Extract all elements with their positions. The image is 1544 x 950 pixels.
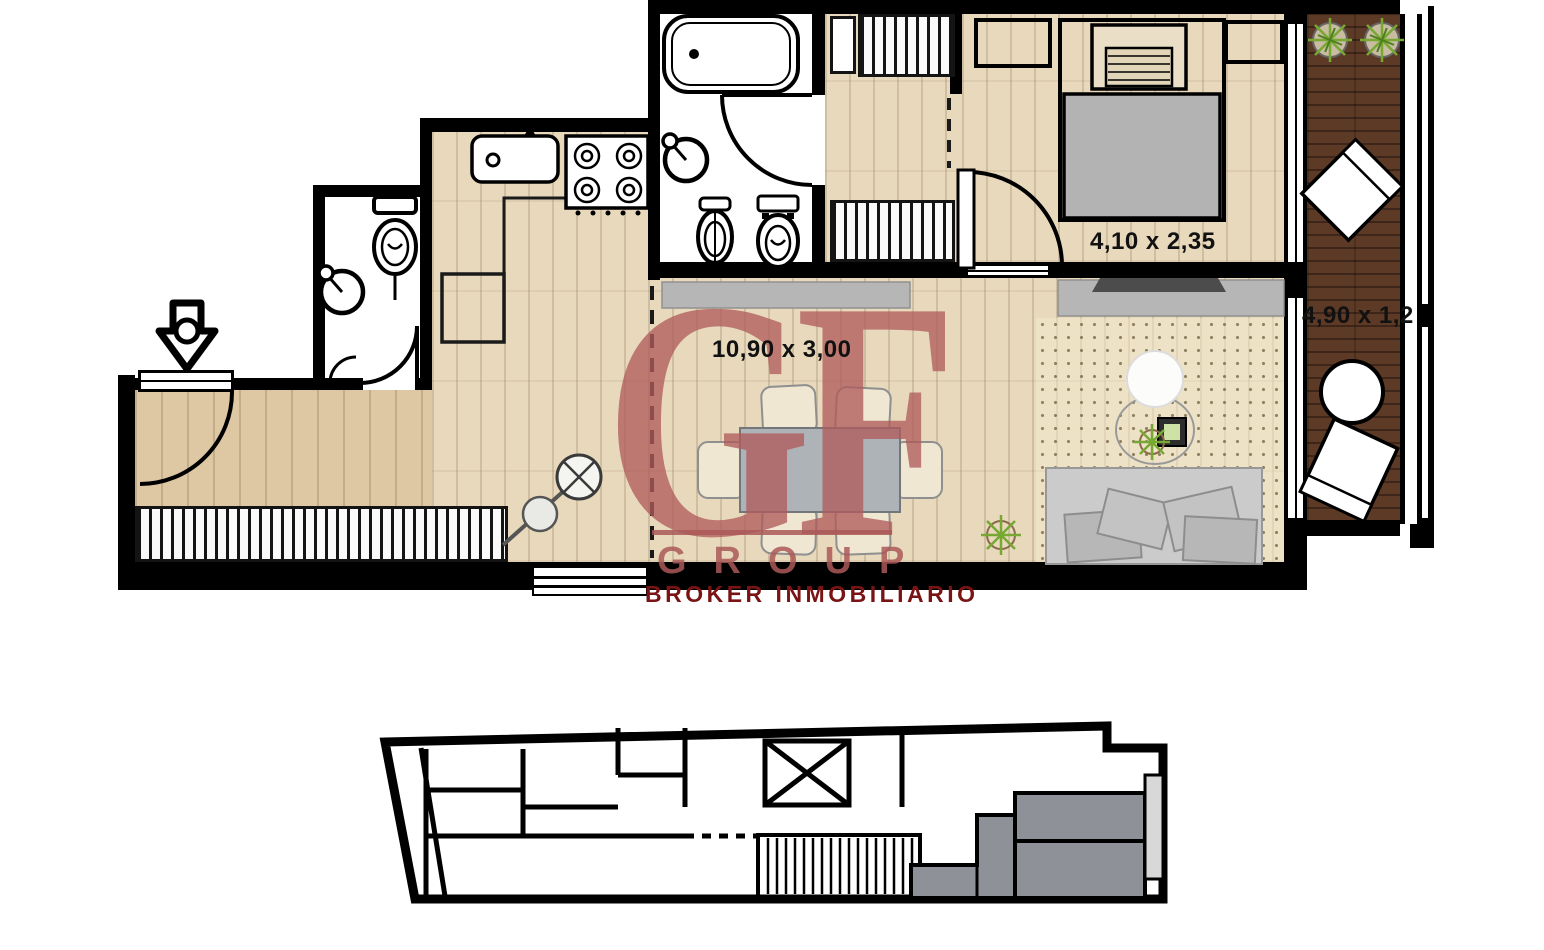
living-rug — [1036, 318, 1284, 562]
building-outline — [385, 726, 1163, 899]
bedroom-floor — [962, 14, 1284, 262]
entry-door — [138, 370, 234, 392]
watermark-tagline: BROKER INMOBILIARIO — [645, 581, 979, 608]
elevator — [765, 741, 849, 805]
main-floorplan: 10,90 x 3,00 4,10 x 2,35 4,90 x 1,2 GF G… — [0, 0, 1544, 950]
toilet-room-floor — [325, 197, 420, 378]
entry-closet — [135, 506, 508, 562]
living-dining-dimensions-label: 10,90 x 3,00 — [712, 336, 851, 364]
watermark-monogram: GF — [605, 250, 942, 590]
wall — [232, 378, 313, 390]
wall — [313, 185, 325, 390]
watermark-rule — [652, 530, 892, 535]
bathroom-floor — [660, 14, 812, 262]
wall — [313, 378, 363, 390]
unit-balcony — [1145, 775, 1163, 879]
balcony-glazing-frame — [1417, 14, 1422, 524]
clipped-digit — [1417, 304, 1432, 327]
wall — [118, 375, 135, 590]
bedroom-dimensions-label: 4,10 x 2,35 — [1090, 228, 1216, 256]
wall — [415, 378, 432, 390]
balcony-deck — [1307, 14, 1400, 522]
dressing-wardrobe-top — [858, 14, 955, 77]
wall — [313, 185, 432, 197]
balcony-glazing — [1405, 14, 1417, 524]
bedroom-balcony-window — [1288, 24, 1303, 262]
watermark-group-text: GROUP — [657, 540, 931, 583]
bedroom-sliding-door — [966, 264, 1050, 277]
keyplan-walls — [421, 727, 902, 896]
wardrobe-door-slot — [830, 16, 856, 74]
entrance-arrow-icon — [159, 303, 215, 369]
plan-outer-frame — [1428, 6, 1434, 536]
living-balcony-window — [1288, 298, 1303, 518]
highlighted-unit — [911, 775, 1163, 898]
wall — [420, 118, 660, 132]
wall — [420, 118, 432, 390]
wall — [1307, 520, 1400, 536]
wall — [812, 14, 825, 95]
balcony-dimensions-label: 4,90 x 1,2 — [1302, 302, 1414, 330]
key-plan — [365, 715, 1175, 915]
stairs — [758, 835, 920, 897]
